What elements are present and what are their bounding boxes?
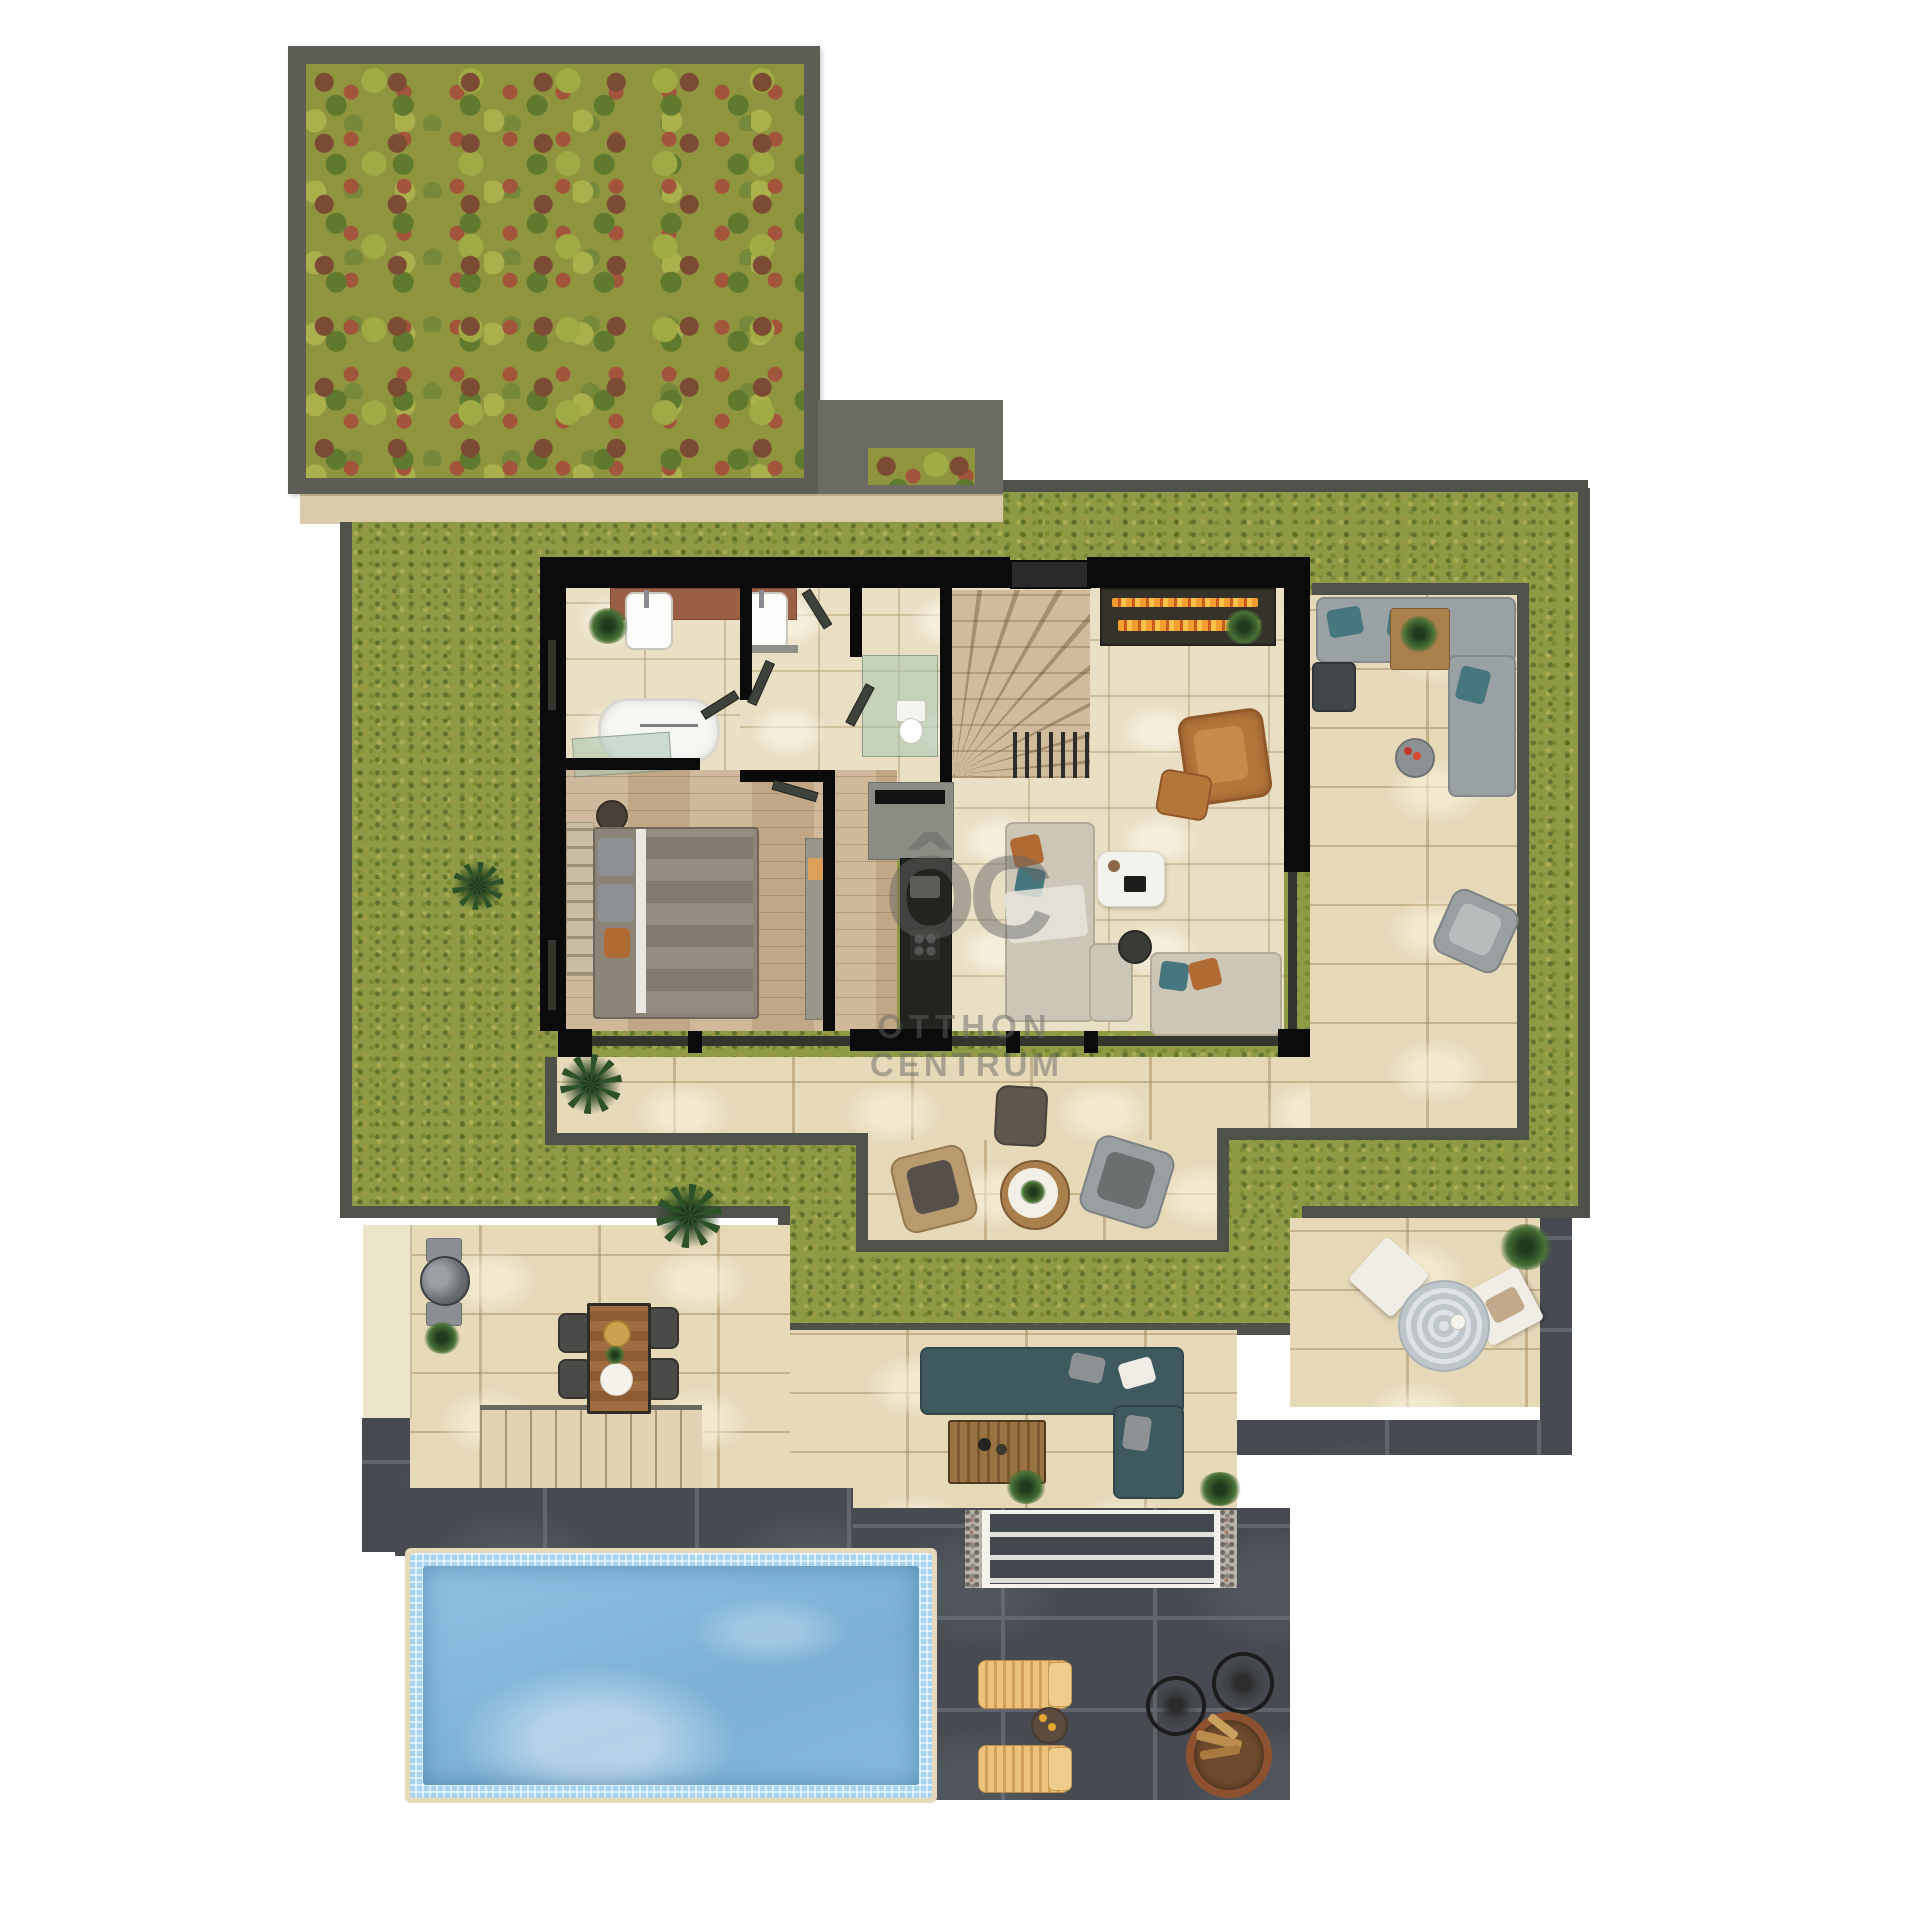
roof-parapet-moss (868, 448, 975, 485)
sofa-pillow (1122, 1414, 1152, 1451)
wall-pier (1084, 1031, 1098, 1053)
fireplace-plant (1224, 610, 1264, 644)
sofa-pillow (1158, 960, 1190, 992)
drink (1048, 1723, 1056, 1731)
garden-stairs (480, 1407, 702, 1488)
bbq-grill (420, 1256, 470, 1306)
window-band (1288, 872, 1297, 1031)
round-rug (1398, 1280, 1490, 1372)
sun-lounger-headrest (1048, 1662, 1072, 1707)
exterior-wall-top (1087, 557, 1310, 588)
patio-edge (1217, 1128, 1517, 1140)
roof-fascia (300, 494, 1003, 524)
lawn-edge (340, 1206, 790, 1218)
entry-steps-gravel (1220, 1510, 1237, 1588)
sun-lounger-headrest (1048, 1747, 1072, 1791)
bed-pillow (598, 838, 634, 876)
bed-duvet-fold (646, 829, 753, 1013)
patio-edge (557, 1133, 868, 1145)
faucet (644, 590, 649, 608)
entry-steps-treads (990, 1514, 1214, 1584)
shrub (452, 862, 504, 910)
tomato-bowl (1413, 752, 1421, 760)
tomato-bowl (1404, 747, 1412, 755)
patio-edge (545, 1057, 557, 1145)
tv-panel (875, 790, 945, 804)
vanity-sink (625, 592, 673, 650)
patio-edge (1517, 583, 1529, 1140)
terrace-plant (1500, 1224, 1552, 1270)
bathtub-faucet (640, 724, 698, 727)
entry-door (1010, 560, 1091, 589)
watermark-line1: OTTHON (870, 1008, 1060, 1046)
dark-pavement (395, 1488, 853, 1556)
table-bowl (996, 1444, 1007, 1455)
charger-plate (603, 1320, 631, 1348)
staircase-railing (1013, 732, 1090, 778)
terrace-side-wall (363, 1225, 412, 1418)
toilet-bowl (899, 718, 923, 744)
table-bowl (978, 1438, 991, 1451)
lawn-edge (340, 522, 352, 1218)
lawn-edge (1578, 488, 1590, 1218)
entry-steps-gravel (965, 1510, 982, 1588)
palm-plant (560, 1054, 622, 1114)
watermark-logo: ÔC (870, 822, 1060, 975)
sofa-pillow (1326, 605, 1364, 638)
dinner-plate (600, 1363, 633, 1396)
bed-sheet (636, 829, 646, 1013)
shower-glass (572, 732, 672, 778)
bed-pillow (604, 928, 630, 958)
palm-plant (656, 1184, 722, 1248)
lounge-ottoman (1312, 662, 1356, 712)
faucet (759, 590, 764, 608)
patio-edge (1217, 1140, 1229, 1252)
lawn-edge (1003, 480, 1588, 492)
table-tray (1124, 876, 1146, 892)
patio-edge (856, 1140, 868, 1252)
green-roof-moss (306, 64, 804, 478)
bed-pillow (598, 884, 634, 922)
terrace-plant (1006, 1470, 1046, 1504)
window (548, 940, 556, 1010)
table-centerpiece (605, 1346, 625, 1364)
potted-plant (424, 1322, 460, 1354)
lawn-edge (1302, 1206, 1590, 1218)
dark-pavement (1237, 1420, 1572, 1455)
wall-pier (1278, 1029, 1310, 1057)
footstool-cognac (1154, 768, 1213, 822)
pool-water (423, 1566, 919, 1785)
patio-edge (1312, 583, 1517, 595)
bathroom-plant (588, 608, 628, 644)
coffee-cup (1450, 1314, 1466, 1330)
terrace-plant (1198, 1472, 1242, 1506)
pouf-ottoman (993, 1085, 1048, 1148)
wall (823, 782, 835, 1031)
exterior-wall-right (1284, 557, 1310, 872)
exterior-wall-top (545, 557, 1010, 588)
table-centerpiece (1020, 1180, 1046, 1204)
towel (808, 858, 823, 880)
side-table-round (1118, 930, 1152, 964)
patio-edge (856, 1240, 1229, 1252)
table-plant (1400, 616, 1438, 652)
wall (940, 557, 952, 782)
bedroom-bench (566, 822, 594, 976)
table-decor (1108, 860, 1120, 872)
fireplace-flame (1112, 598, 1258, 607)
partition (752, 645, 798, 653)
watermark-line2: CENTRUM (870, 1046, 1060, 1084)
drink (1039, 1714, 1047, 1722)
wall (566, 758, 700, 770)
wall-pier (558, 1029, 592, 1057)
floorplan-rendering: ÔC OTTHON CENTRUM (0, 0, 1920, 1920)
wall (740, 770, 835, 782)
wall-pier (688, 1031, 702, 1053)
window (548, 640, 556, 710)
